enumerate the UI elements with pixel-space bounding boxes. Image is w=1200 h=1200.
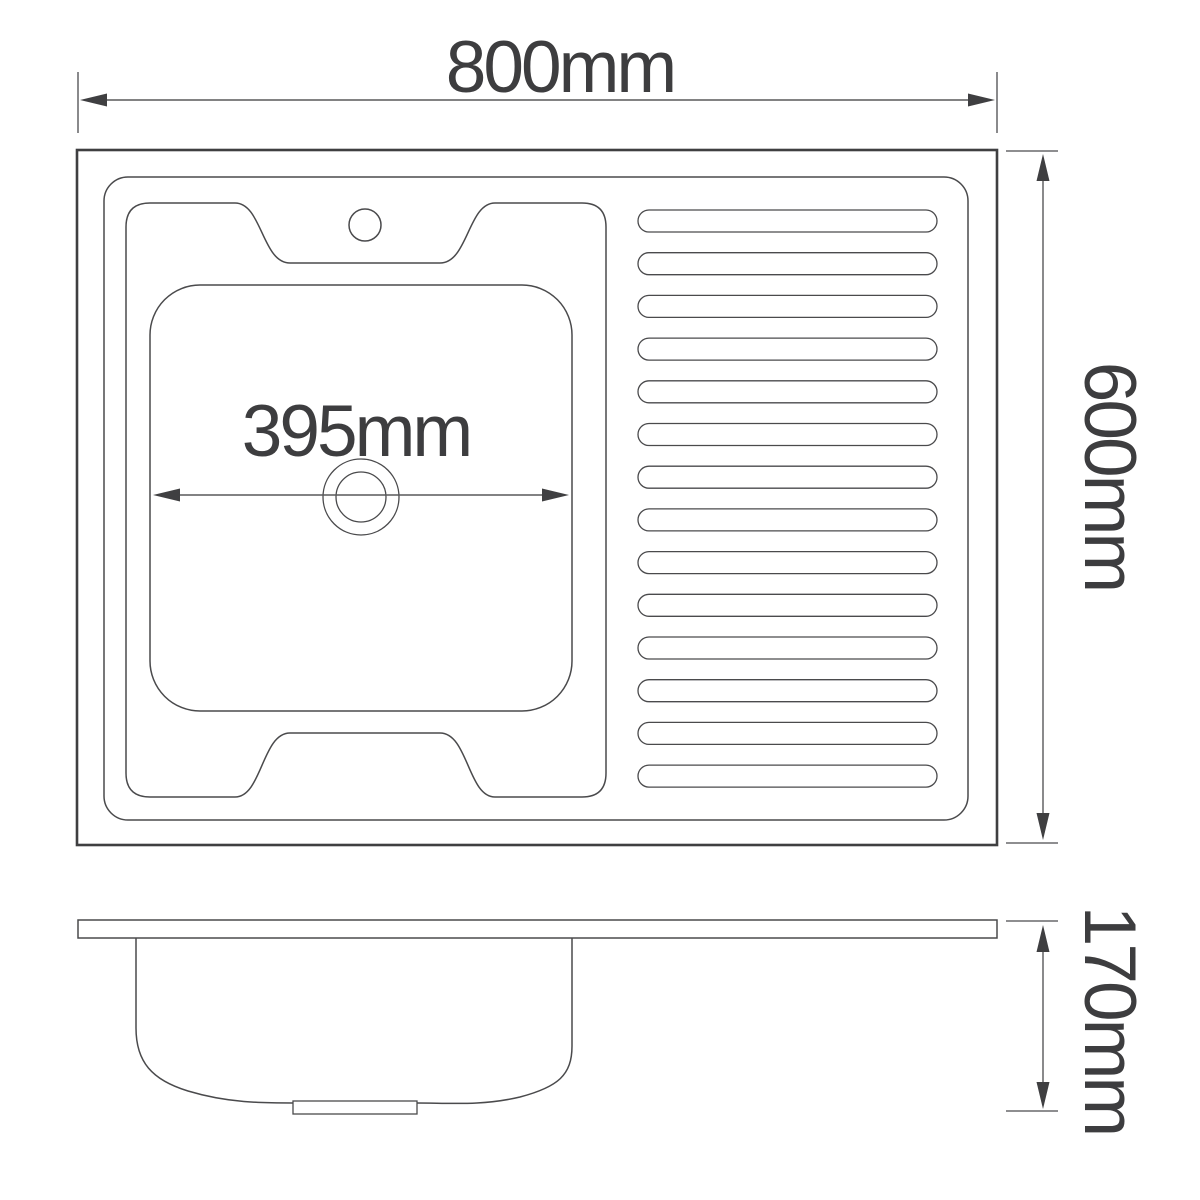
drainboard-rib <box>638 295 937 317</box>
bowl-width-label: 395mm <box>242 391 470 472</box>
drainboard-rib <box>638 722 937 744</box>
drainboard-rib <box>638 637 937 659</box>
arrowhead-up-icon <box>1037 925 1050 952</box>
dimension-bowl-width: 395mm <box>153 391 569 502</box>
drainboard-rib <box>638 210 937 232</box>
arrowhead-right-icon <box>542 489 569 502</box>
overall-depth-label: 600mm <box>1069 362 1150 590</box>
arrowhead-right-icon <box>968 94 995 107</box>
drainboard-rib <box>638 381 937 403</box>
dimension-overall-depth: 600mm <box>1006 151 1150 843</box>
sink-rim <box>104 177 968 820</box>
drain-inner-ring <box>336 472 386 522</box>
arrowhead-up-icon <box>1037 154 1050 181</box>
drainboard-rib <box>638 338 937 360</box>
drainboard-rib <box>638 253 937 275</box>
sink-outer-edge <box>77 150 997 845</box>
arrowhead-down-icon <box>1037 1082 1050 1109</box>
dimension-overall-width: 800mm <box>78 27 997 133</box>
side-view <box>78 920 997 1114</box>
side-view-drain-stub <box>293 1101 417 1114</box>
drainboard-rib <box>638 765 937 787</box>
side-view-bowl-right <box>417 938 572 1103</box>
sink-dimension-drawing: 800mm 600mm 395mm 170mm <box>0 0 1200 1200</box>
drainboard-rib <box>638 424 937 446</box>
arrowhead-left-icon <box>80 94 107 107</box>
bowl <box>150 285 572 711</box>
drainboard-rib <box>638 509 937 531</box>
side-view-rim-bar <box>78 920 997 938</box>
bowl-deck-outline <box>126 203 606 797</box>
side-view-bowl-left <box>136 938 293 1103</box>
overall-width-label: 800mm <box>446 27 674 108</box>
faucet-hole <box>349 209 381 241</box>
arrowhead-down-icon <box>1037 813 1050 840</box>
drainboard-rib <box>638 680 937 702</box>
bowl-depth-label: 170mm <box>1069 906 1150 1134</box>
drainboard-rib <box>638 466 937 488</box>
dimension-bowl-depth: 170mm <box>1006 906 1150 1134</box>
top-view <box>77 150 997 845</box>
drainboard-rib <box>638 594 937 616</box>
drainboard-rib <box>638 552 937 574</box>
drainboard-ribs <box>638 210 937 787</box>
arrowhead-left-icon <box>153 489 180 502</box>
drawing-canvas: 800mm 600mm 395mm 170mm <box>0 0 1200 1200</box>
